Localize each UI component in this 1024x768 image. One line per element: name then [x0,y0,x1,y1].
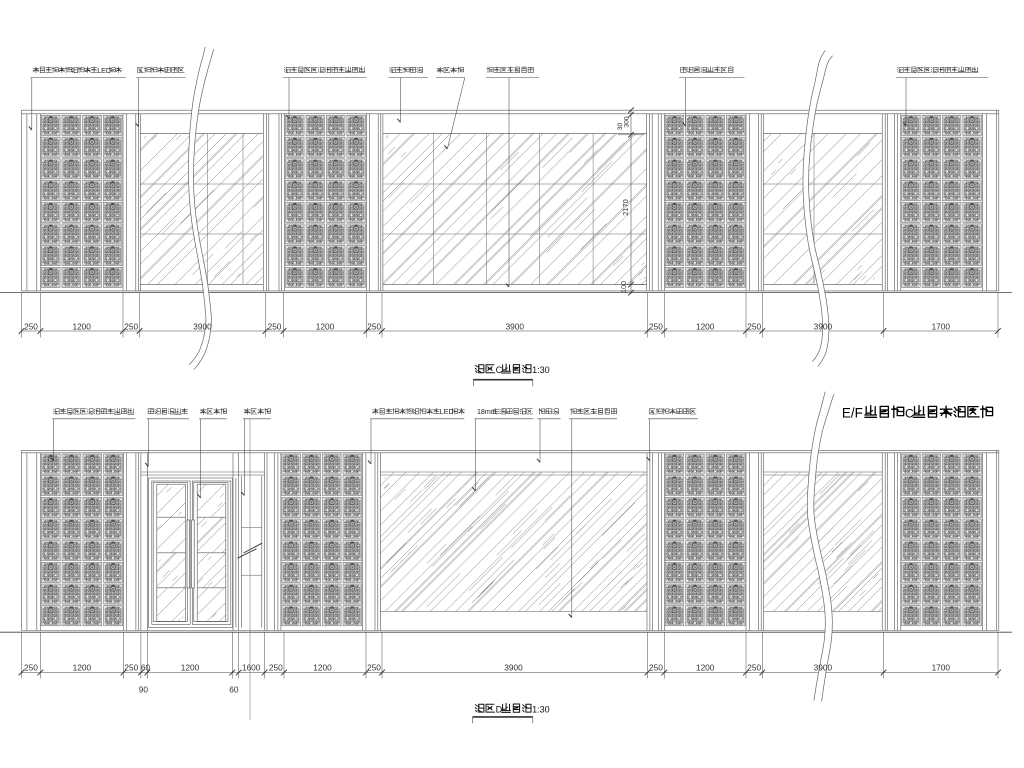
svg-text:60: 60 [141,662,151,672]
svg-text:250: 250 [124,662,138,672]
svg-text:250: 250 [269,662,283,672]
svg-text:D: D [496,704,503,714]
svg-text:3900: 3900 [504,662,523,672]
svg-text:1700: 1700 [932,662,951,672]
svg-text:250: 250 [24,662,38,672]
svg-text:60: 60 [229,684,239,694]
svg-text:E/F: E/F [842,405,863,420]
svg-text:1:30: 1:30 [532,704,550,714]
svg-text:3900: 3900 [814,321,833,331]
svg-text:1600: 1600 [242,662,261,672]
svg-text:250: 250 [124,321,138,331]
svg-text:3900: 3900 [193,321,212,331]
svg-text:250: 250 [747,662,761,672]
svg-text:250: 250 [367,321,381,331]
svg-text:1:30: 1:30 [532,365,550,375]
svg-text:C: C [496,365,503,375]
svg-text:3900: 3900 [506,321,525,331]
svg-text:250: 250 [268,321,282,331]
svg-text:LED: LED [440,408,454,416]
svg-text:1200: 1200 [181,662,200,672]
svg-text:2170: 2170 [621,199,630,215]
svg-text:100: 100 [619,281,628,293]
svg-text:1200: 1200 [73,662,92,672]
svg-text:250: 250 [24,321,38,331]
svg-text:250: 250 [649,662,663,672]
svg-text:1200: 1200 [72,321,91,331]
svg-text:1200: 1200 [313,662,332,672]
svg-text:250: 250 [747,321,761,331]
svg-text:90: 90 [139,684,149,694]
svg-text:3900: 3900 [814,662,833,672]
svg-text:1200: 1200 [696,662,715,672]
svg-text:LED: LED [97,67,111,75]
svg-text:250: 250 [367,662,381,672]
svg-text:250: 250 [649,321,663,331]
svg-text:C: C [905,406,914,420]
svg-text:1200: 1200 [316,321,335,331]
svg-text:1200: 1200 [696,321,715,331]
svg-text:1700: 1700 [932,321,951,331]
svg-text:300: 300 [624,116,631,128]
